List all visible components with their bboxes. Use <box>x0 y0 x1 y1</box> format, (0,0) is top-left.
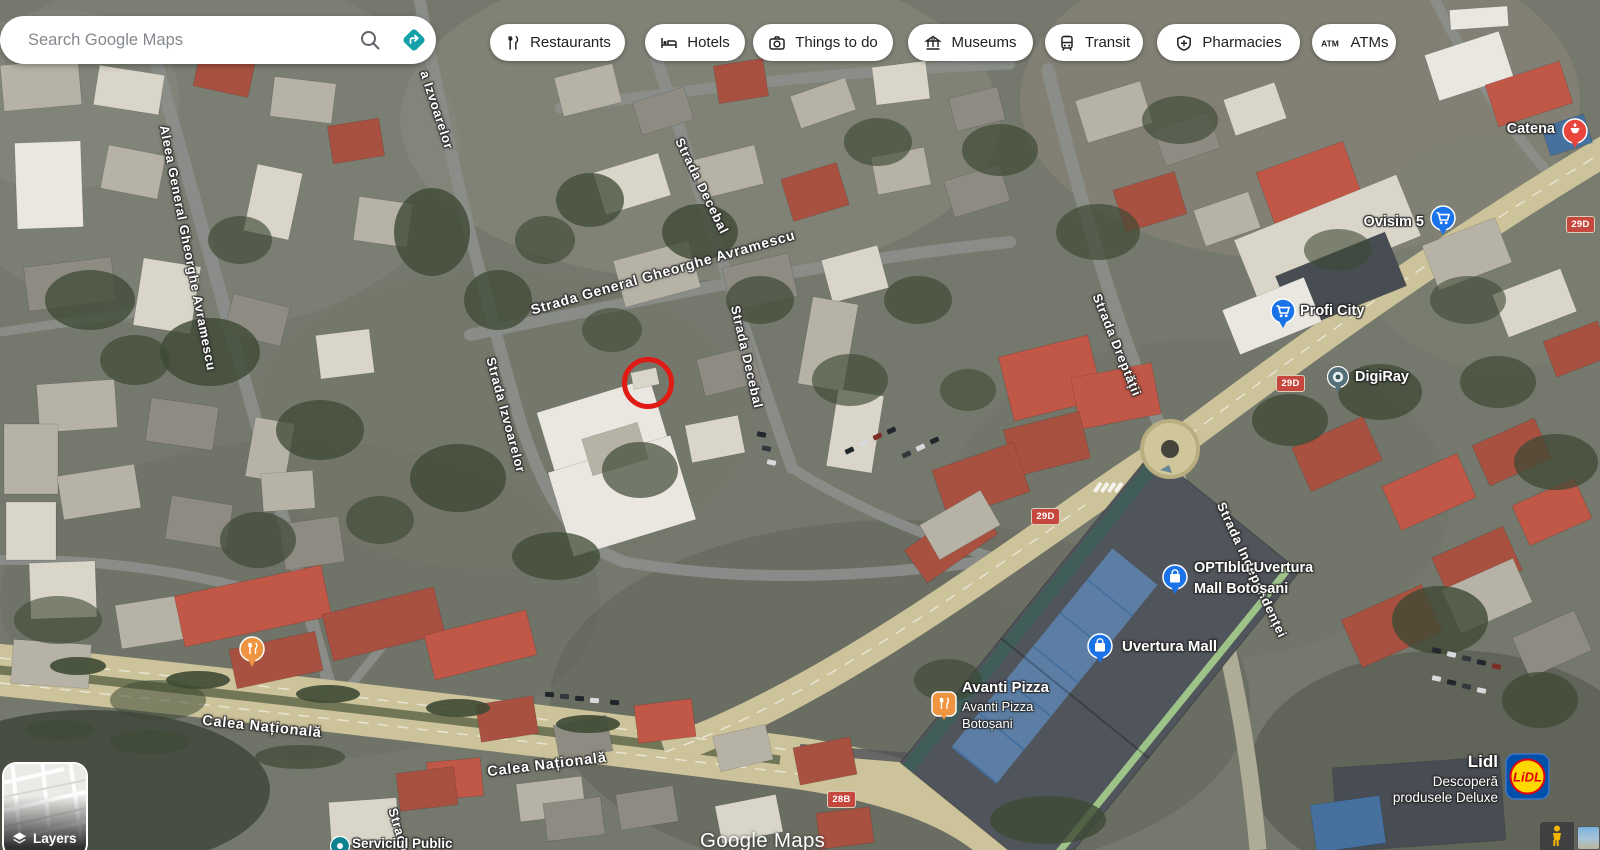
restaurant-square-pin-icon[interactable] <box>931 691 957 721</box>
layers-label: Layers <box>33 831 77 846</box>
layers-icon <box>12 831 27 846</box>
chip-things-to-do[interactable]: Things to do <box>753 24 893 61</box>
poi-subtitle: Botoșani <box>962 716 1049 731</box>
poi-label-line: Mall Botoșani <box>1194 579 1313 600</box>
lidl-logo[interactable]: LiDL <box>1505 753 1550 801</box>
atm-icon-text: ATM <box>1322 38 1340 48</box>
poi-subtitle: produsele Deluxe <box>1348 790 1498 805</box>
route-badge: 29D <box>1031 508 1060 525</box>
poi-title: Lidl <box>1348 752 1498 772</box>
search-icon <box>359 29 381 51</box>
poi-subtitle: Avanti Pizza <box>962 699 1049 714</box>
search-button[interactable] <box>348 18 392 62</box>
chip-label: Transit <box>1085 34 1130 51</box>
pegman-icon <box>1550 825 1564 847</box>
things-to-do-icon <box>768 34 786 52</box>
lidl-logo-text: LiDL <box>1513 770 1542 785</box>
route-badge: 29D <box>1566 216 1595 233</box>
chip-hotels[interactable]: Hotels <box>645 24 745 61</box>
google-maps-app: Aleea General Gheorghe Avramescu a Izvoa… <box>0 0 1600 850</box>
transit-icon <box>1058 34 1076 52</box>
poi-label-profi-city[interactable]: Profi City <box>1300 303 1364 319</box>
streetview-thumbnail[interactable] <box>1577 826 1600 850</box>
shopping-bag-pin-icon[interactable] <box>1087 633 1113 665</box>
hotels-icon <box>660 34 678 52</box>
museums-icon: M <box>924 34 942 52</box>
directions-icon <box>399 25 429 55</box>
atms-icon: ATM <box>1319 36 1341 50</box>
search-bar <box>0 16 436 64</box>
chip-transit[interactable]: Transit <box>1045 24 1143 61</box>
poi-label-lidl[interactable]: Lidl Descoperă produsele Deluxe <box>1348 752 1498 805</box>
chip-label: Pharmacies <box>1202 34 1281 51</box>
poi-label-ovisim[interactable]: Ovisim 5 <box>1320 214 1424 230</box>
svg-text:M: M <box>932 36 936 41</box>
poi-label-serviciul-public[interactable]: Serviciul Public <box>352 836 453 850</box>
poi-title: Avanti Pizza <box>962 679 1049 696</box>
chip-label: Things to do <box>795 34 878 51</box>
poi-label-digiray[interactable]: DigiRay <box>1355 369 1409 385</box>
route-badge: 28B <box>827 791 856 808</box>
poi-label-avanti[interactable]: Avanti Pizza Avanti Pizza Botoșani <box>962 679 1049 731</box>
poi-label-uvertura-mall[interactable]: Uvertura Mall <box>1122 638 1217 655</box>
poi-label-line: OPTIblu Uvertura <box>1194 558 1313 579</box>
chip-pharmacies[interactable]: Pharmacies <box>1157 24 1300 61</box>
generic-place-pin-icon[interactable] <box>1327 366 1349 394</box>
chip-restaurants[interactable]: Restaurants <box>490 24 625 61</box>
poi-label-optiblu[interactable]: OPTIblu Uvertura Mall Botoșani <box>1194 558 1313 600</box>
chip-label: ATMs <box>1350 34 1388 51</box>
chip-museums[interactable]: M Museums <box>908 24 1033 61</box>
search-input[interactable] <box>26 30 348 51</box>
shopping-bag-pin-icon[interactable] <box>1162 564 1188 596</box>
chip-label: Restaurants <box>530 34 611 51</box>
restaurants-icon <box>504 34 521 52</box>
shopping-cart-pin-icon[interactable] <box>1430 205 1456 237</box>
restaurant-pin-icon[interactable] <box>239 636 265 668</box>
chip-label: Hotels <box>687 34 730 51</box>
poi-subtitle: Descoperă <box>1348 774 1498 789</box>
red-circle-annotation <box>622 357 674 409</box>
layers-button[interactable]: Layers <box>2 762 88 850</box>
pharmacy-pin-icon[interactable] <box>1562 118 1588 150</box>
route-badge: 29D <box>1276 375 1305 392</box>
chip-label: Museums <box>951 34 1016 51</box>
directions-button[interactable] <box>392 18 436 62</box>
google-maps-watermark: Google Maps <box>700 829 825 850</box>
shopping-cart-pin-icon[interactable] <box>1270 298 1296 330</box>
chip-atms[interactable]: ATM ATMs <box>1312 24 1396 61</box>
pegman-control[interactable] <box>1540 822 1574 850</box>
pharmacies-icon <box>1175 34 1193 52</box>
poi-label-catena[interactable]: Catena <box>1455 121 1555 137</box>
public-service-pin-icon[interactable] <box>330 836 350 850</box>
